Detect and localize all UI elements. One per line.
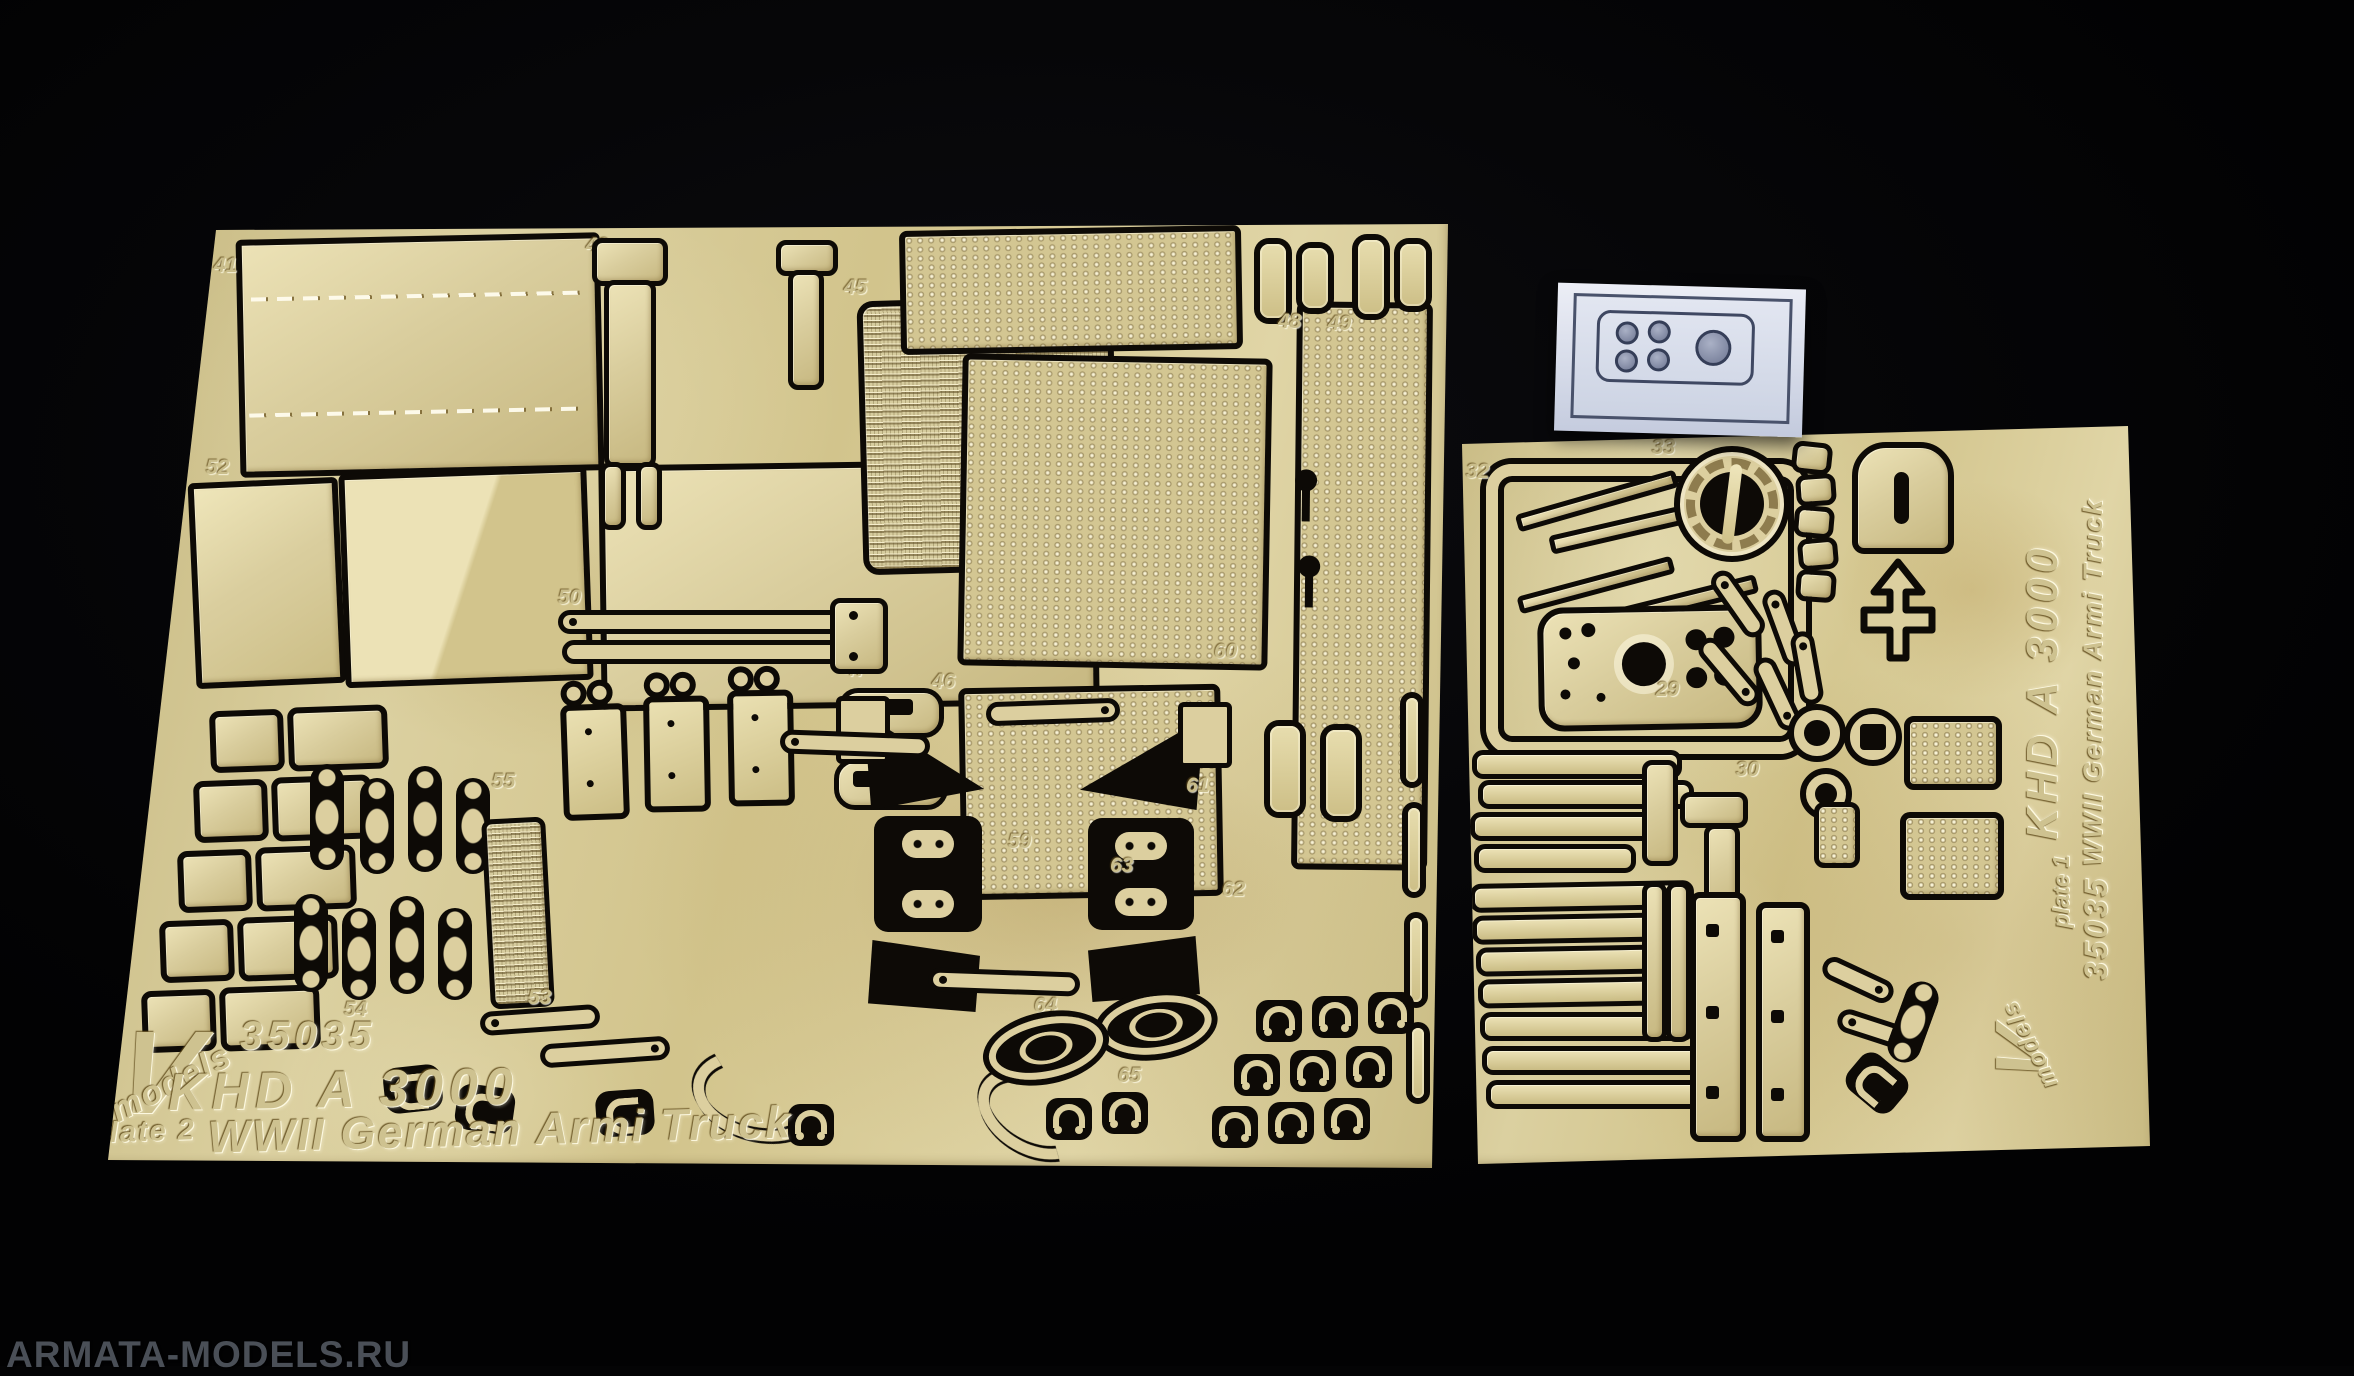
sheet-code-vertical: 35035 (2078, 876, 2115, 980)
part-number: 64 (1034, 994, 1057, 1018)
etched-part-tread-panel (899, 225, 1243, 355)
etched-part-omega-clamp (1256, 1000, 1302, 1042)
part-number: 50 (558, 586, 581, 610)
etched-part-clamp (1260, 244, 1286, 318)
etched-part-arm (780, 729, 931, 758)
hole (1771, 930, 1784, 943)
cutout-triangle (1088, 936, 1200, 1002)
part-number: 59 (1008, 830, 1031, 854)
photo-background: 41 52 55 43 45 44 46 4 (0, 0, 2354, 1366)
a-frame-top-plate (1178, 702, 1232, 768)
etched-part-tread-plate (1814, 802, 1860, 868)
hole (1771, 1010, 1784, 1023)
etched-part-leaf-spring (1482, 1046, 1704, 1075)
etched-fold-line (249, 407, 585, 418)
etched-part-fork (1666, 882, 1691, 1042)
etched-part-omega-clamp (1268, 1102, 1314, 1144)
part-number: 62 (1222, 878, 1245, 902)
etched-part-muffler-cap (592, 238, 668, 286)
part-number: 32 (1466, 460, 1489, 484)
etched-part-ring-square-hole (1844, 708, 1902, 766)
etched-part-round-grille (1674, 446, 1790, 562)
etched-part-buckle (287, 704, 389, 771)
etched-brass-sheet-plate1: 32 33 29 30 (1452, 420, 2158, 1170)
part-number: 55 (492, 770, 515, 794)
part-number: 29 (1656, 678, 1679, 702)
etched-part-channel-rail (1756, 902, 1810, 1142)
etched-part-omega-clamp (1312, 996, 1358, 1038)
small-hole (1568, 657, 1580, 669)
etched-part-arm (986, 698, 1121, 727)
etched-part-shackle (390, 896, 424, 994)
etched-part-z-channel (1642, 760, 1678, 866)
etched-part-tread-plate (1904, 716, 2002, 790)
etched-part-shackle (438, 908, 472, 1000)
etched-part-buckle (159, 919, 235, 984)
etched-part-muffler-prong (636, 462, 662, 530)
etched-part-omega-clamp (788, 1104, 834, 1146)
etched-part-fork (1642, 882, 1667, 1042)
gauge-dial (1647, 320, 1671, 344)
etched-part-tread-column (1291, 301, 1433, 870)
film-panel-outline (1595, 310, 1755, 386)
etched-part-omega-clamp (1102, 1092, 1148, 1134)
part-number: 33 (1652, 436, 1675, 460)
hole (849, 611, 858, 620)
etched-part-shackle (294, 894, 328, 992)
etched-part-leaf-spring (1474, 844, 1636, 873)
etched-part-buckle (209, 709, 285, 774)
etched-part-link (1797, 536, 1840, 571)
small-hole (1559, 627, 1571, 639)
etched-part-rod (562, 640, 868, 664)
etched-part-mesh-strip (481, 816, 555, 1009)
watermark-text: ARMATA-MODELS.RU (6, 1334, 411, 1376)
part-number: 65 (1118, 1064, 1141, 1088)
etched-part-muffler-body (604, 280, 656, 468)
etched-part-strap (560, 703, 630, 821)
gauge-dial (1647, 348, 1671, 372)
small-hole (1560, 689, 1570, 699)
keyhole-cutout (1298, 555, 1320, 577)
etched-part-strap (643, 695, 711, 812)
etched-part-omega-clamp (1234, 1054, 1280, 1096)
etched-part-hairpin (1408, 808, 1420, 892)
etched-part-tread-plate (1900, 812, 2004, 900)
etched-part-leaf-spring (1470, 812, 1660, 841)
part-number: 61 (1186, 774, 1209, 798)
etched-part-seat-blank (1852, 442, 1954, 554)
etched-part-leaf-spring (1486, 1080, 1714, 1109)
v-models-logo: V models (1992, 1031, 2051, 1080)
part-number: 30 (1736, 758, 1759, 782)
etched-part-panel (188, 477, 347, 689)
etched-part-clamp (1358, 240, 1384, 314)
etched-part-omega-clamp (1368, 992, 1414, 1034)
sheet-title-vertical: KHD A 3000 (2018, 544, 2068, 840)
etched-part-omega-clamp (1290, 1050, 1336, 1092)
etched-part-roof-panel (236, 232, 605, 478)
sheet-code: 35035 (240, 1014, 376, 1059)
etched-part-link (1795, 569, 1837, 604)
small-hole (1581, 623, 1595, 637)
etched-fold-line (251, 291, 581, 302)
etched-part-clamp (1302, 248, 1328, 308)
etched-part-hairpin (1412, 1028, 1424, 1098)
etched-part-clamp (1326, 730, 1356, 816)
etched-part-clamp (1270, 726, 1300, 812)
a-frame-center-cutout (874, 816, 982, 932)
etched-part-arrow-lever (1848, 556, 1948, 676)
gauge-dial (1615, 349, 1639, 373)
hole (849, 652, 858, 661)
etched-part-rod (558, 610, 868, 634)
etched-part-clamp-plate (830, 598, 888, 674)
etched-part-ring (1788, 704, 1846, 762)
etched-part-a-frame (1040, 696, 1240, 1008)
etched-part-omega-clamp (1324, 1098, 1370, 1140)
a-frame-center-cutout (1088, 818, 1194, 930)
part-number: 41 (214, 254, 237, 278)
etched-part-panel (338, 466, 593, 689)
part-number: 52 (206, 456, 229, 480)
etched-part-omega-clamp (1046, 1098, 1092, 1140)
etched-part-shackle (342, 908, 376, 1000)
hole (1706, 1006, 1719, 1019)
etched-part-shackle (360, 778, 394, 874)
part-number: 49 (1328, 312, 1351, 336)
gauge-hole (1686, 667, 1707, 688)
etched-part-shackle (408, 766, 442, 872)
small-hole (1596, 693, 1605, 702)
part-number: 45 (844, 276, 867, 300)
part-number: 48 (1278, 310, 1301, 334)
etched-part-z-channel (1680, 792, 1748, 828)
etched-part-channel-rail (1690, 892, 1746, 1142)
hole (1706, 924, 1719, 937)
keyhole-cutout (1295, 469, 1317, 491)
instrument-dial-film (1554, 283, 1806, 438)
sheet-plate-vertical: plate 1 (2048, 855, 2075, 928)
sheet-plate: plate 2 (89, 1114, 196, 1151)
etched-part-muffler-prong (600, 462, 626, 530)
etched-part-omega-clamp (1346, 1046, 1392, 1088)
etched-part-shackle (310, 764, 344, 870)
etched-part-hinge (539, 1035, 670, 1068)
sheet-subtitle-vertical: WWII German Armi Truck (2078, 498, 2109, 866)
etched-part-clamp (1400, 244, 1426, 306)
etched-part-hairpin (1406, 698, 1418, 782)
etched-part-leaf-spring (1478, 976, 1658, 1008)
etched-part-hairpin (1410, 918, 1422, 1002)
etched-part-link (1793, 504, 1836, 539)
etched-part-omega-clamp (1212, 1106, 1258, 1148)
gauge-dial (1615, 321, 1639, 345)
etched-part-bracket (788, 270, 824, 390)
etched-part-buckle (193, 779, 269, 844)
etched-brass-sheet-plate2: 41 52 55 43 45 44 46 4 (88, 218, 1452, 1170)
hole (1706, 1086, 1719, 1099)
etched-part-eyelet-link (1818, 953, 1897, 1007)
part-number: 63 (1110, 854, 1133, 878)
etched-part-tread-panel (957, 353, 1272, 670)
etched-part-link (1795, 473, 1837, 508)
etched-part-link (1790, 440, 1833, 476)
hole (1771, 1088, 1784, 1101)
part-number: 60 (1214, 640, 1237, 664)
gauge-dial-large (1695, 329, 1732, 366)
slot-cutout (1894, 472, 1909, 524)
etched-part-buckle (177, 849, 253, 914)
